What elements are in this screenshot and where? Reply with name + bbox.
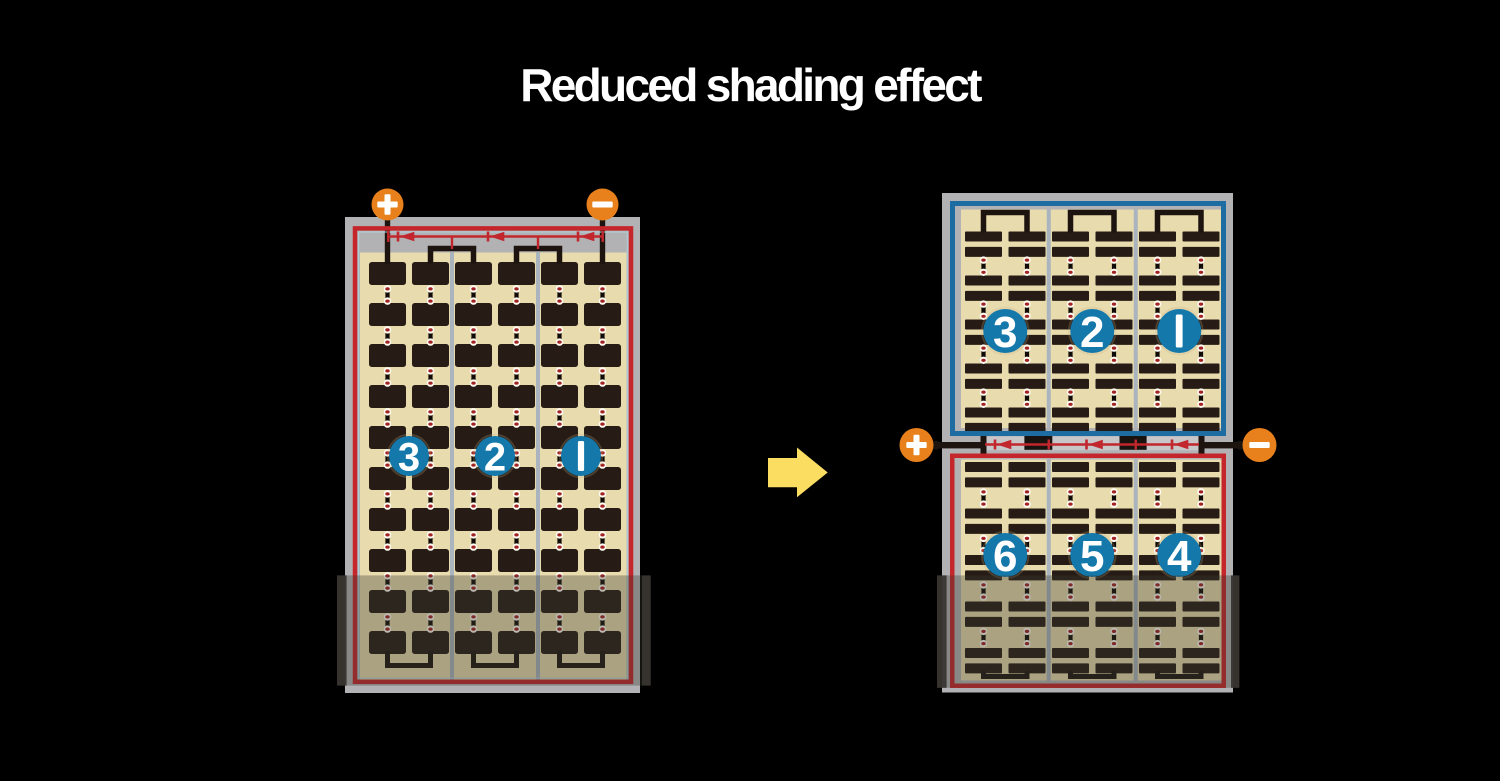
svg-text:6: 6 [993, 532, 1017, 581]
svg-text:3: 3 [398, 436, 420, 480]
svg-text:3: 3 [993, 308, 1017, 357]
svg-text:2: 2 [1080, 308, 1104, 357]
svg-text:5: 5 [1080, 532, 1104, 581]
svg-text:4: 4 [1167, 532, 1192, 581]
svg-text:2: 2 [484, 436, 506, 480]
